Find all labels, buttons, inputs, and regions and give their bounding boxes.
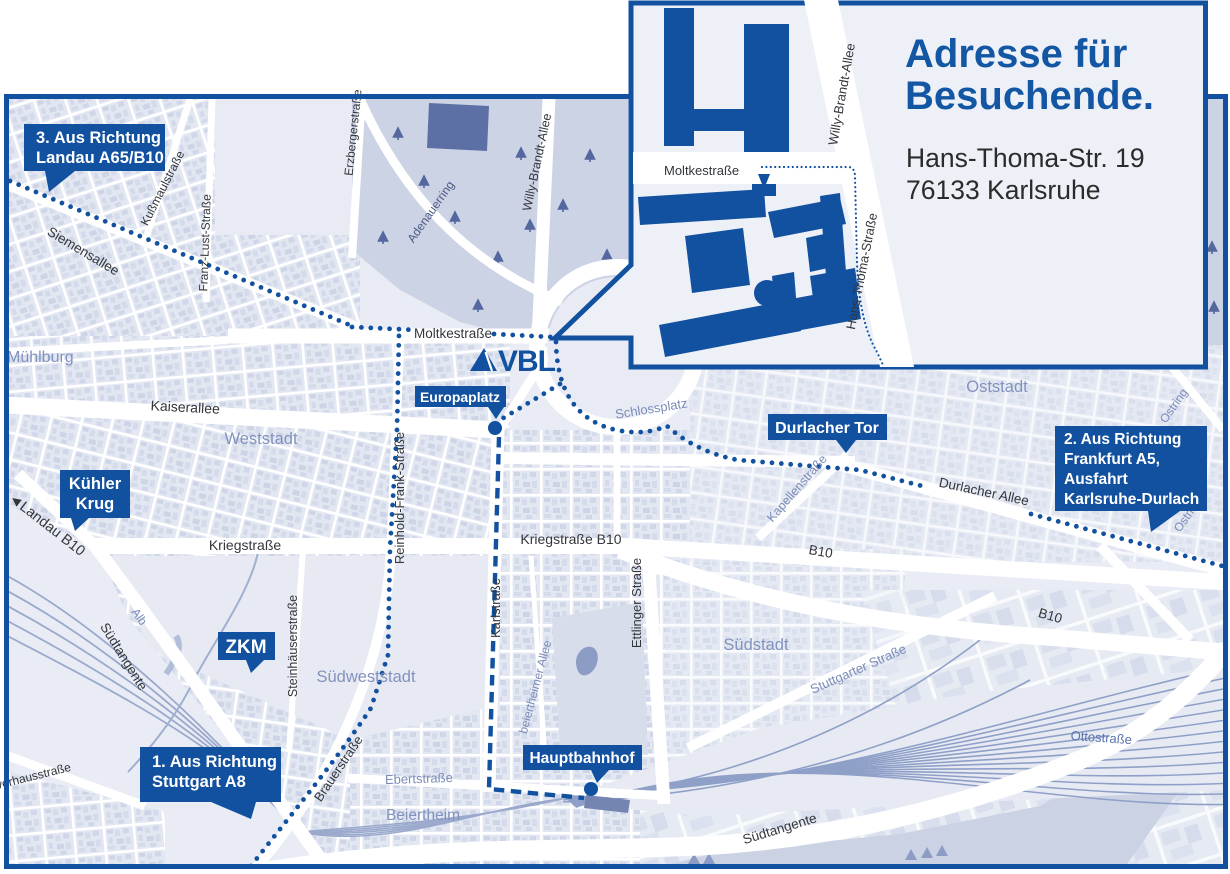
svg-text:Krug: Krug — [76, 495, 115, 513]
svg-text:VBL: VBL — [498, 345, 556, 378]
svg-text:Karlstraße: Karlstraße — [488, 578, 503, 638]
svg-text:Mühlburg: Mühlburg — [7, 349, 74, 366]
svg-text:Reinhold-Frank-Straße: Reinhold-Frank-Straße — [392, 432, 407, 564]
svg-text:Steinhäuserstraße: Steinhäuserstraße — [286, 595, 300, 697]
svg-text:Europaplatz: Europaplatz — [420, 389, 500, 405]
svg-text:76133 Karlsruhe: 76133 Karlsruhe — [906, 175, 1100, 205]
svg-text:3. Aus Richtung: 3. Aus Richtung — [36, 129, 161, 147]
svg-text:Frankfurt A5,: Frankfurt A5, — [1064, 451, 1160, 468]
svg-text:Hauptbahnhof: Hauptbahnhof — [529, 750, 635, 767]
svg-text:Beiertheim: Beiertheim — [386, 807, 460, 824]
svg-text:Südstadt: Südstadt — [723, 636, 789, 654]
svg-text:Moltkestraße: Moltkestraße — [664, 163, 739, 178]
svg-text:Ebertstraße: Ebertstraße — [385, 770, 453, 787]
svg-text:1. Aus Richtung: 1. Aus Richtung — [152, 753, 277, 771]
svg-text:Kriegstraße B10: Kriegstraße B10 — [520, 531, 621, 547]
svg-text:Südweststadt: Südweststadt — [316, 668, 415, 686]
svg-text:Kühler: Kühler — [69, 475, 122, 493]
svg-text:Oststadt: Oststadt — [966, 378, 1028, 396]
svg-text:Karlsruhe-Durlach: Karlsruhe-Durlach — [1064, 491, 1199, 508]
svg-text:ZKM: ZKM — [225, 637, 266, 658]
svg-text:Durlacher Tor: Durlacher Tor — [775, 420, 879, 437]
svg-text:Kriegstraße: Kriegstraße — [209, 537, 282, 553]
svg-text:Stuttgart A8: Stuttgart A8 — [152, 773, 246, 791]
svg-text:Moltkestraße: Moltkestraße — [414, 326, 492, 341]
svg-text:Weststadt: Weststadt — [224, 430, 297, 448]
svg-text:Ettlinger Straße: Ettlinger Straße — [629, 558, 644, 648]
svg-text:2. Aus Richtung: 2. Aus Richtung — [1064, 431, 1181, 448]
svg-text:Ausfahrt: Ausfahrt — [1064, 471, 1128, 488]
svg-text:Hans-Thoma-Str. 19: Hans-Thoma-Str. 19 — [906, 143, 1145, 173]
svg-text:Landau A65/B10: Landau A65/B10 — [36, 149, 164, 167]
svg-text:Besuchende.: Besuchende. — [905, 74, 1154, 118]
svg-text:Adresse für: Adresse für — [905, 32, 1127, 76]
